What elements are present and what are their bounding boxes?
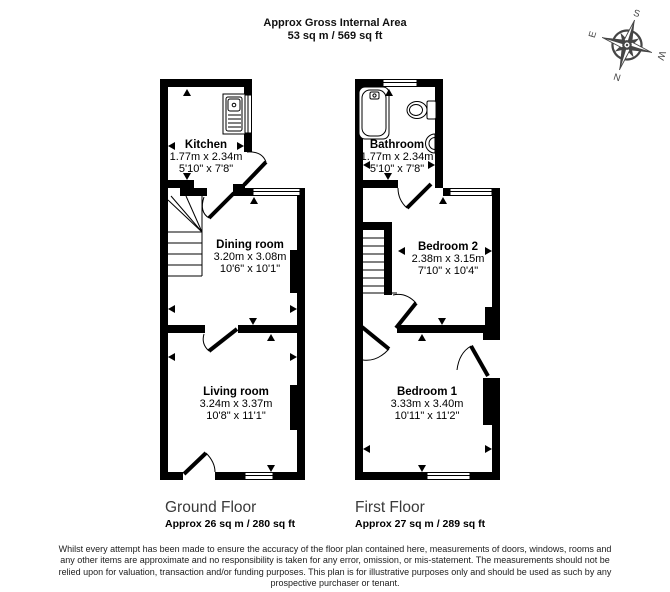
compass-letter-south: S: [632, 8, 641, 20]
chimney-breast: [290, 385, 305, 430]
dimension-arrow: [168, 305, 175, 313]
dimension-arrow: [250, 197, 258, 204]
wall: [355, 472, 427, 480]
wall: [273, 472, 305, 480]
first-floor-plan: Bathroom 1.77m x 2.34m 5'10" x 7'8" Bedr…: [355, 79, 500, 480]
room-imperial-bedroom1: 10'11" x 11'2": [395, 410, 460, 422]
window: [253, 189, 300, 196]
room-metric-bedroom2: 2.38m x 3.15m: [412, 253, 485, 265]
dimension-arrow: [183, 89, 191, 96]
dimension-arrow: [398, 247, 405, 255]
room-metric-bedroom1: 3.33m x 3.40m: [391, 398, 464, 410]
compass-letter-west: W: [654, 49, 667, 61]
wall: [397, 325, 500, 333]
wall: [355, 79, 363, 480]
wall: [160, 180, 194, 188]
room-name-living: Living room: [203, 386, 269, 398]
room-metric-living: 3.24m x 3.37m: [200, 398, 273, 410]
wall: [297, 188, 305, 480]
wall: [238, 325, 305, 333]
ground-floor-area: Approx 26 sq m / 280 sq ft: [165, 518, 295, 530]
wall: [443, 188, 450, 196]
wall: [470, 472, 500, 480]
wall: [245, 188, 253, 196]
dimension-arrow: [363, 445, 370, 453]
room-imperial-bathroom: 5'10" x 7'8": [370, 163, 424, 175]
room-metric-kitchen: 1.77m x 2.34m: [170, 151, 243, 163]
door: [393, 294, 416, 328]
compass-letter-north: N: [612, 72, 622, 85]
wall: [492, 188, 500, 196]
chimney-breast: [485, 307, 500, 325]
dimension-arrow: [267, 334, 275, 341]
room-name-bathroom: Bathroom: [370, 139, 424, 151]
wall: [215, 472, 245, 480]
wall: [483, 333, 500, 340]
door: [398, 184, 431, 208]
dimension-arrow: [438, 318, 446, 325]
door: [457, 346, 488, 376]
wall: [160, 79, 252, 87]
wall: [160, 79, 168, 480]
floor-plan-drawing: Kitchen 1.77m x 2.34m 5'10" x 7'8" Dinin…: [0, 0, 670, 592]
disclaimer-line: relied upon for valuation, transaction a…: [0, 567, 670, 578]
room-imperial-kitchen: 5'10" x 7'8": [179, 163, 233, 175]
disclaimer-line: prospective purchaser or tenant.: [0, 578, 670, 589]
room-imperial-dining: 10'6" x 10'1": [220, 263, 280, 275]
room-name-bedroom2: Bedroom 2: [418, 241, 478, 253]
door: [362, 327, 389, 360]
dimension-arrow: [418, 334, 426, 341]
window: [383, 80, 417, 87]
room-metric-dining: 3.20m x 3.08m: [214, 251, 287, 263]
wall: [160, 472, 183, 480]
staircase: [168, 196, 202, 276]
disclaimer-line: Whilst every attempt has been made to en…: [0, 544, 670, 555]
wall: [355, 79, 383, 87]
chimney-breast: [483, 378, 500, 425]
dimension-arrow: [249, 318, 257, 325]
kitchen-sink-icon: [223, 94, 245, 134]
dimension-arrow: [485, 247, 492, 255]
floor-plan-page: Approx Gross Internal Area 53 sq m / 569…: [0, 0, 670, 592]
disclaimer-line: any other items are approximate and no r…: [0, 555, 670, 566]
room-imperial-bedroom2: 7'10" x 10'4": [418, 265, 478, 277]
toilet-icon: [407, 101, 436, 119]
room-imperial-living: 10'8" x 11'1": [206, 410, 266, 422]
window: [450, 189, 492, 196]
room-name-bedroom1: Bedroom 1: [397, 386, 458, 398]
window: [427, 473, 470, 480]
wall: [355, 180, 398, 188]
wall: [180, 188, 207, 196]
room-metric-bathroom: 1.77m x 2.34m: [361, 151, 434, 163]
dimension-arrow: [439, 197, 447, 204]
room-name-kitchen: Kitchen: [185, 139, 227, 151]
compass-rose-icon: S N E W: [576, 0, 670, 95]
dimension-arrow: [267, 465, 275, 472]
door: [184, 453, 215, 474]
dimension-arrow: [418, 465, 426, 472]
first-floor-area: Approx 27 sq m / 289 sq ft: [355, 518, 485, 530]
first-floor-label: First Floor: [355, 499, 425, 517]
window: [245, 95, 252, 133]
chimney-breast: [290, 250, 305, 293]
dimension-arrow: [168, 353, 175, 361]
bathtub-icon: [359, 87, 389, 139]
wall: [244, 133, 252, 152]
ground-floor-plan: Kitchen 1.77m x 2.34m 5'10" x 7'8" Dinin…: [160, 79, 305, 480]
window: [245, 473, 273, 480]
wall: [160, 325, 205, 333]
dimension-arrow: [168, 142, 175, 150]
compass-letter-east: E: [587, 30, 599, 39]
room-name-dining: Dining room: [216, 239, 284, 251]
dimension-arrow: [237, 142, 244, 150]
ground-floor-label: Ground Floor: [165, 499, 256, 517]
first-doors: [362, 184, 488, 376]
dimension-arrow: [290, 353, 297, 361]
dimension-arrow: [290, 305, 297, 313]
disclaimer-text: Whilst every attempt has been made to en…: [0, 544, 670, 590]
wall: [363, 222, 392, 230]
door: [203, 329, 237, 351]
wall: [384, 230, 392, 295]
wall: [417, 79, 443, 87]
dimension-arrow: [485, 445, 492, 453]
